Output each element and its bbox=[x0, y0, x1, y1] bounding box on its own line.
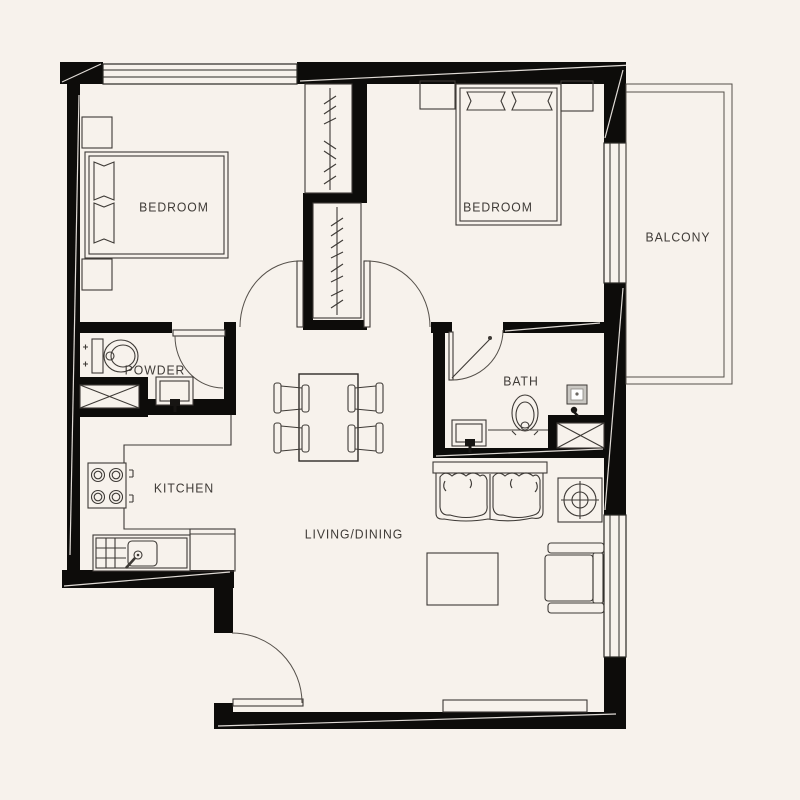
kitchen-sink-icon bbox=[93, 535, 190, 571]
room-label-bedroom-1: BEDROOM bbox=[139, 200, 209, 215]
dining-table-icon bbox=[299, 374, 358, 461]
entry-door-icon bbox=[232, 633, 303, 706]
window-top-icon bbox=[103, 64, 297, 84]
nightstand-icon bbox=[82, 117, 112, 290]
side-table-icon bbox=[558, 478, 602, 522]
floor-plan: BEDROOM BEDROOM BALCONY POWDER BATH KITC… bbox=[0, 0, 800, 800]
armchair-icon bbox=[545, 543, 604, 613]
tv-console-icon bbox=[443, 700, 587, 712]
room-label-bedroom-2: BEDROOM bbox=[463, 200, 533, 215]
water-heater-icon bbox=[567, 385, 587, 404]
wardrobe-bedroom1-icon bbox=[305, 84, 352, 193]
room-label-powder: POWDER bbox=[125, 363, 186, 378]
sofa-icon bbox=[433, 462, 547, 521]
floor-plan-drawing bbox=[0, 0, 800, 800]
cooktop-icon bbox=[88, 463, 133, 508]
dining-chairs-icon bbox=[274, 383, 383, 453]
bedroom1-door-icon bbox=[240, 261, 303, 327]
bedroom2-door-icon bbox=[364, 261, 430, 327]
service-shaft-icon bbox=[557, 423, 604, 448]
window-balcony-icon bbox=[604, 143, 626, 283]
bath-door-icon bbox=[449, 330, 503, 380]
toilet-bath-icon bbox=[488, 395, 548, 435]
room-label-bath: BATH bbox=[503, 374, 538, 389]
nightstand-icon bbox=[420, 81, 593, 111]
room-label-living-dining: LIVING/DINING bbox=[305, 527, 403, 542]
coffee-table-icon bbox=[427, 553, 498, 605]
wardrobe-bedroom2-icon bbox=[313, 203, 361, 318]
window-living-icon bbox=[604, 515, 626, 657]
room-label-kitchen: KITCHEN bbox=[154, 481, 214, 496]
service-shaft-icon bbox=[80, 385, 139, 408]
room-label-balcony: BALCONY bbox=[646, 230, 711, 245]
